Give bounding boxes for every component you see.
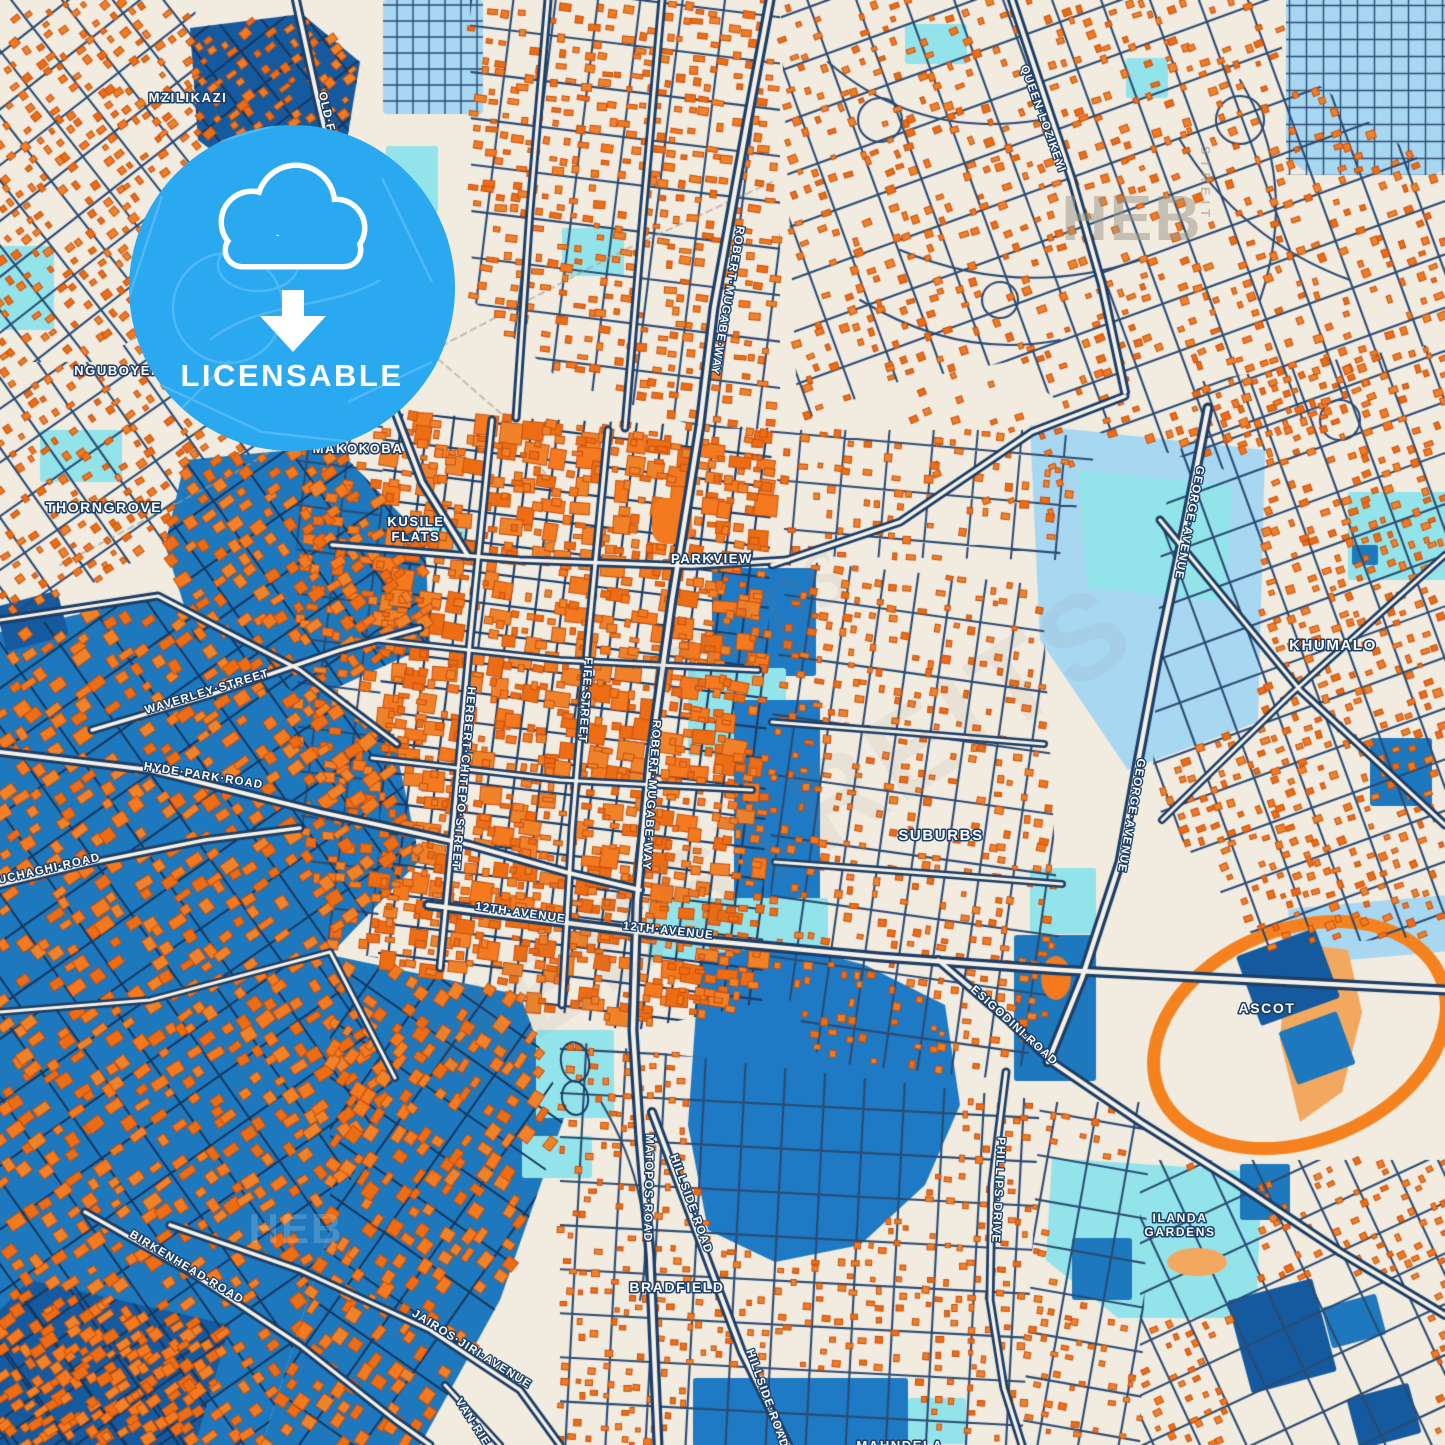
street-label: QUEEN·LOZIKEYI xyxy=(1018,64,1068,174)
place-label: ASCOT xyxy=(1239,1000,1296,1016)
place-label: THORNGROVE xyxy=(46,499,162,515)
place-label: KHUMALO xyxy=(1289,637,1377,654)
place-label: MZILIKAZI xyxy=(149,90,228,105)
place-label: PARKVIEW xyxy=(671,551,753,566)
place-label: KUSILEFLATS xyxy=(387,514,444,544)
street-label: MATOPOS·ROAD xyxy=(641,1134,655,1242)
badge-label: LICENSABLE xyxy=(180,358,403,393)
street-label: BIRKENHEAD·ROAD xyxy=(127,1229,245,1307)
street-label: HYDE·PARK·ROAD xyxy=(143,761,264,792)
street-label: ROBERT·MUGABE·WAY xyxy=(708,225,746,376)
licensable-badge[interactable]: BARBOUR FIELDS xyxy=(128,118,455,451)
place-label: SUBURBS xyxy=(898,827,983,844)
street-label: GEORGE·AVENUE xyxy=(1172,465,1206,581)
place-label: ILANDAGARDENS xyxy=(1144,1211,1215,1239)
street-label: HILLSIDE·ROAD xyxy=(743,1348,790,1445)
map-stage: HEBSTREITmapsHEBSTREITSHEB OLD·FALLS·ROA… xyxy=(0,0,1445,1445)
street-label: PHILLIPS·DRIVE xyxy=(989,1137,1007,1244)
watermark-text: HEB xyxy=(1061,182,1202,254)
watermark-text: HEB xyxy=(249,1205,344,1252)
street-label: HERBERT·CHITEPO·STREET xyxy=(449,686,477,870)
street-label: ESIGODINI·ROAD xyxy=(968,984,1060,1068)
street-label: FIFE·STREET xyxy=(576,657,594,744)
street-label: GEORGE·AVENUE xyxy=(1115,758,1147,874)
street-label: HILLSIDE·ROAD xyxy=(667,1153,714,1255)
street-label: VAN·RIE xyxy=(453,1396,493,1445)
street-label: UCHAGHI·ROAD xyxy=(0,851,102,886)
place-label: MAHNDELA xyxy=(856,1438,943,1445)
watermark-text: STREIT xyxy=(1198,146,1213,222)
place-label: BRADFIELD xyxy=(629,1279,724,1295)
watermark-text: maps xyxy=(620,511,867,727)
map-overlay: HEBSTREITmapsHEBSTREITSHEB OLD·FALLS·ROA… xyxy=(0,0,1445,1445)
street-label: WAVERLEY·STREET xyxy=(144,667,271,716)
street-label: JAIROS·JIRI·AVENUE xyxy=(410,1308,534,1392)
